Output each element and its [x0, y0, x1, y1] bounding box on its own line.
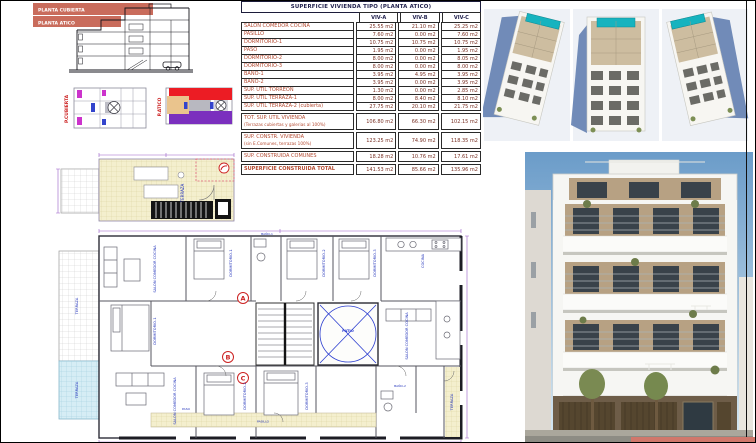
room-label-terraza-2: TERRAZA: [75, 381, 79, 399]
total-value-b: 74.90 m2: [398, 132, 438, 149]
room-label-cocina: COCINA: [421, 253, 425, 268]
section-level-bands: PLANTA CUBIERTA PLANTA ATICO: [33, 3, 153, 27]
table-total-row: TOT. SUP. UTIL VIVIENDA (Terrazas cubier…: [241, 113, 481, 130]
key-plan-cubierta: P.CUBIERTA: [61, 86, 151, 132]
stair-cross-icon: [108, 102, 120, 114]
total-value-b: 66.30 m2: [398, 113, 438, 130]
total-value-a: 123.25 m2: [356, 132, 396, 149]
facade-render: [525, 152, 753, 442]
room-label-patio: PATIO: [342, 329, 354, 333]
key-plan-atico: P.ATICO: [154, 86, 236, 128]
roof-access-marker: [219, 163, 229, 173]
room-label-terraza-3: TERRAZA: [450, 393, 454, 411]
room-label-salon-c: SALON COMEDOR COCINA: [405, 312, 409, 360]
stair-cross-icon: [216, 101, 226, 111]
axon-render-3: [662, 8, 752, 141]
roof-terrace-plan: TERRAZA: [56, 153, 234, 221]
surface-area-table: SUPERFICIE VIVIENDA TIPO (PLANTA ATICO) …: [241, 1, 481, 175]
room-label-pasillo: PASILLO: [257, 420, 270, 424]
atico-plan: PATIO: [59, 229, 469, 443]
axon-render-2: [571, 9, 659, 141]
row-value-b: 20.10 m2: [398, 102, 438, 111]
room-label-paso: PASO: [182, 407, 191, 411]
room-label-salon-a: SALON COMEDOR COCINA: [153, 245, 157, 293]
unit-marker-b: B: [226, 354, 231, 362]
title-block-salmon-bar: [631, 437, 756, 443]
room-label-dormitorio2-c: DORMITORIO-2: [243, 382, 247, 409]
room-label-bano2: BAÑO-2: [394, 383, 406, 388]
room-label-terraza-roof: TERRAZA: [180, 183, 185, 203]
axonometric-renders: [483, 7, 753, 143]
roof-stair: [151, 201, 213, 219]
row-value-a: 27.75 m2: [356, 102, 396, 111]
row-value-c: 21.75 m2: [441, 102, 481, 111]
main-building: [553, 160, 737, 396]
total-label: TOT. SUP. UTIL VIVIENDA (Terrazas cubier…: [241, 113, 354, 130]
table-total-row: SUP. CONSTR. VIVIENDA (sin E.Comunes, te…: [241, 132, 481, 149]
room-label-dormitorio3: DORMITORIO-3: [373, 249, 377, 276]
room-label-salon-b: SALON COMEDOR COCINA: [173, 377, 177, 425]
total-value-c: 118.35 m2: [441, 132, 481, 149]
main-stair: [256, 303, 314, 365]
room-label-dormitorio1: DORMITORIO-1: [229, 249, 233, 276]
total-label-sub: (Terrazas cubiertas y galerias al 100%): [244, 122, 351, 128]
building-section-drawing: PLANTA CUBIERTA PLANTA ATICO: [29, 2, 199, 84]
axon-render-1: [483, 8, 570, 141]
patio-cross-icon: PATIO: [318, 303, 378, 365]
total-value-a: 106.80 m2: [356, 113, 396, 130]
row-label: SUP. ÚTIL TERRAZA-2 (cubierta): [241, 102, 354, 111]
room-label-dormitorio2: DORMITORIO-2: [322, 249, 326, 276]
plan-sheet: PLANTA CUBIERTA PLANTA ATICO P.CUBIERTA: [0, 0, 756, 443]
total-value-c: 102.15 m2: [441, 113, 481, 130]
room-label-dormitorio1-b: DORMITORIO-1: [153, 317, 157, 344]
sheet-frame-line: [746, 1, 747, 443]
room-label-dormitorio3-c: DORMITORIO-3: [305, 382, 309, 409]
total-label-sub: (sin E.Comunes, terrazas 100%): [244, 141, 351, 147]
room-label-bano1: BAÑO-1: [261, 231, 273, 236]
unit-marker-c: C: [241, 375, 246, 383]
table-row: SUP. ÚTIL TERRAZA-2 (cubierta) 27.75 m2 …: [241, 102, 481, 111]
key-plan-atico-label: P.ATICO: [157, 97, 163, 116]
atico-floor-plan: TERRAZA: [56, 151, 471, 443]
total-label: SUP. CONSTR. VIVIENDA (sin E.Comunes, te…: [241, 132, 354, 149]
key-plan-cubierta-label: P.CUBIERTA: [64, 94, 70, 123]
unit-marker-a: A: [240, 295, 245, 303]
planta-cubierta-band-label: PLANTA CUBIERTA: [38, 8, 85, 14]
car-icon: [163, 62, 181, 70]
room-label-terraza-1: TERRAZA: [75, 297, 79, 315]
planta-atico-band-label: PLANTA ATICO: [38, 20, 75, 26]
